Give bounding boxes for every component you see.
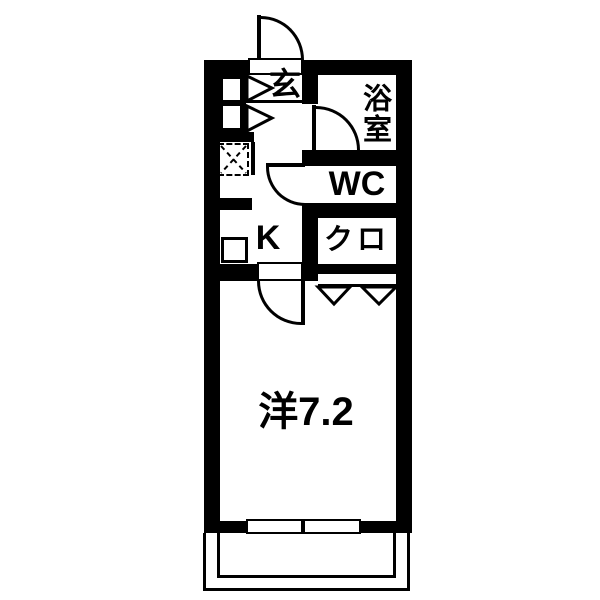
bathroom-label: 浴室 [356,78,392,150]
toilet-label: WC [318,164,396,204]
closet-label: クロ [318,221,396,259]
entrance-label: 玄 [266,66,304,102]
main-room-label: 洋7.2 [206,389,406,435]
closet-folding-door-triangle-right [362,287,396,304]
closet-folding-door-triangle-left [318,287,350,304]
kitchen-label: K [251,219,285,257]
shoe-cabinet-folding-door-triangle-bottom [247,106,272,131]
floor-plan: 玄 浴室 WC クロ K 洋7.2 [0,0,600,600]
